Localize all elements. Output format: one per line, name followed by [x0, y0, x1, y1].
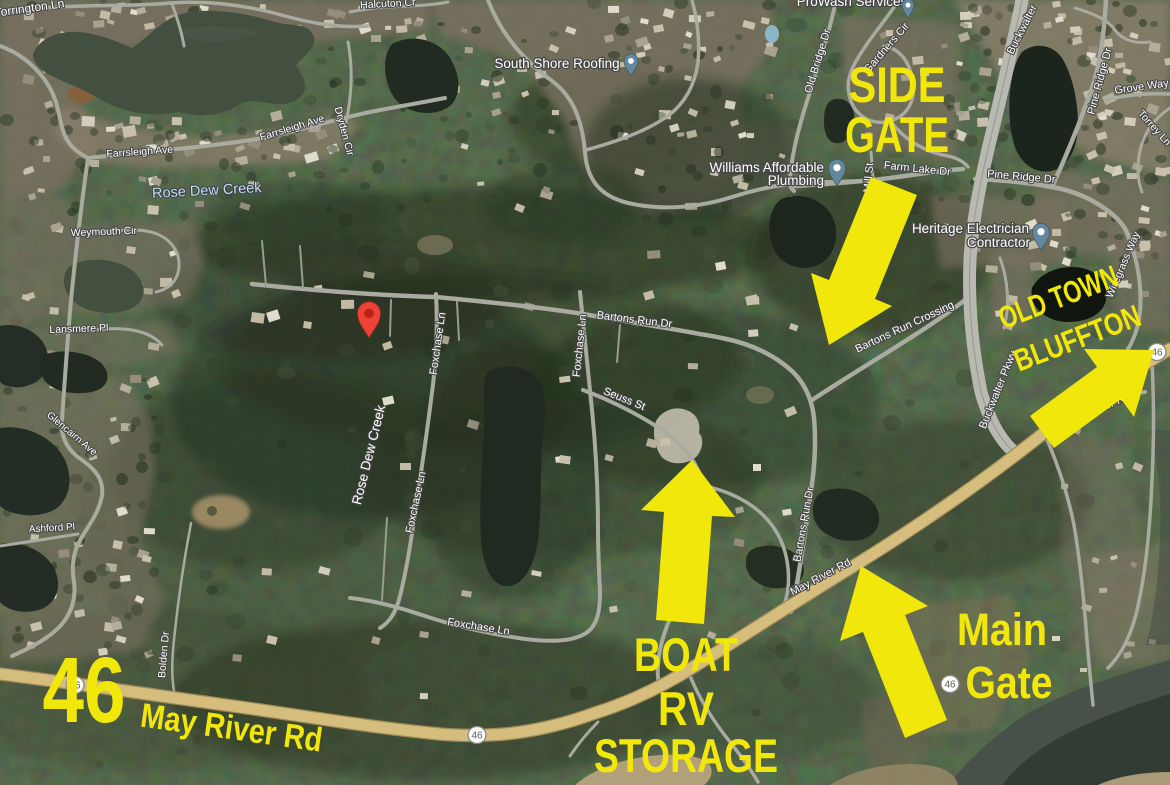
svg-text:Heritage Electrician: Heritage Electrician [912, 221, 1029, 236]
svg-text:Gate: Gate [966, 657, 1053, 708]
svg-text:46: 46 [1151, 348, 1163, 359]
svg-text:46: 46 [471, 731, 483, 742]
svg-text:46: 46 [43, 638, 126, 742]
svg-text:Lansmere Pl: Lansmere Pl [49, 322, 108, 336]
svg-text:Main: Main [957, 604, 1047, 655]
svg-text:SIDE: SIDE [849, 57, 946, 113]
svg-text:RV: RV [658, 682, 715, 735]
svg-text:South Shore Roofing: South Shore Roofing [494, 56, 619, 71]
svg-text:BOAT: BOAT [634, 628, 738, 681]
svg-text:ProWash Services: ProWash Services [797, 0, 908, 9]
svg-text:STORAGE: STORAGE [594, 729, 778, 782]
svg-text:Plumbing: Plumbing [768, 173, 824, 188]
svg-text:Weymouth Cir: Weymouth Cir [71, 225, 138, 239]
svg-text:GATE: GATE [845, 107, 949, 163]
svg-text:Contractor: Contractor [967, 235, 1031, 250]
svg-text:46: 46 [944, 680, 956, 691]
